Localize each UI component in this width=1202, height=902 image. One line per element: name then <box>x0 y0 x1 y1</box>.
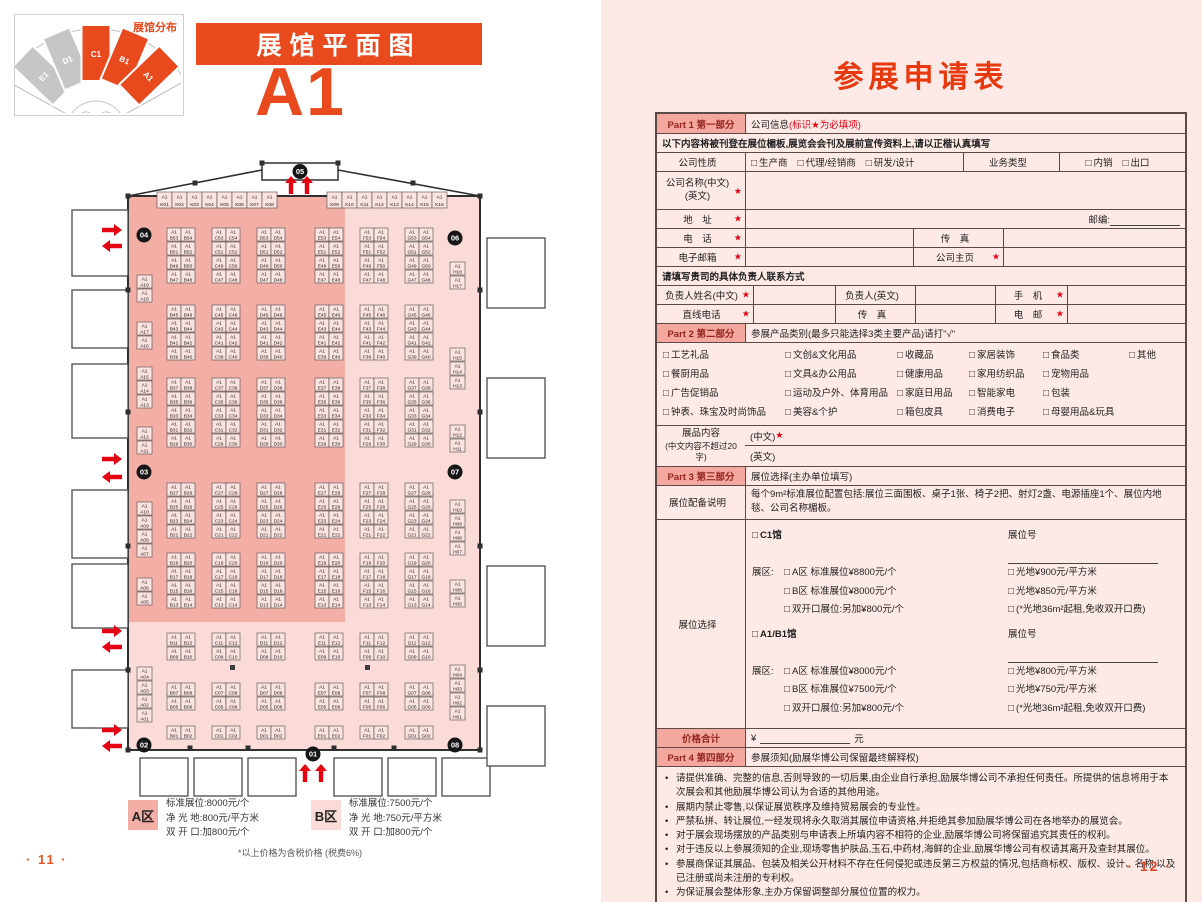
contact-notice-row: 请填写贵司的具体负责人联系方式 <box>657 266 1185 285</box>
bullet-dot-icon: • <box>665 801 668 815</box>
part4-heading: 参展须知(励展华博公司保留最终解释权) <box>745 748 1185 766</box>
application-form: Part 1 第一部分 公司信息 (标识★为必填项) 以下内容将被刊登在展位楣板… <box>655 112 1187 902</box>
checkbox-label: B区 标准展位¥7500元/个 <box>792 684 897 695</box>
wall-node <box>126 194 131 199</box>
checkbox-icon: □ <box>752 527 758 546</box>
checkbox-option[interactable]: □家用纺织品 <box>969 365 1043 384</box>
wall-node <box>392 746 397 751</box>
checkbox-label: 家庭日用品 <box>905 388 953 399</box>
checkbox-label: 箱包皮具 <box>905 407 943 418</box>
wall-node <box>126 748 131 753</box>
gate-number: 03 <box>140 468 148 477</box>
checkbox-option[interactable]: □收藏品 <box>897 346 969 365</box>
checkbox-icon: □ <box>784 564 790 583</box>
bullet-text: 参展商保证其展品、包装及相关公开材料不存在任何侵犯或违反第三方权益的情况,包括商… <box>676 859 1175 884</box>
wall-node <box>478 668 483 673</box>
checkbox-icon: □ <box>784 700 790 719</box>
checkbox-label: 研发/设计 <box>874 158 915 169</box>
price-total-label: 价格合计 <box>657 729 745 747</box>
checkbox-label: 美容&个护 <box>793 407 837 418</box>
wall-node <box>478 410 483 415</box>
checkbox-icon: □ <box>663 403 669 422</box>
wall-node <box>193 181 198 186</box>
entrance-arrow-right <box>102 453 122 465</box>
required-star-icon: ★ <box>1056 309 1064 320</box>
categories-row: □工艺礼品□餐厨用品□广告促销品□钟表、珠宝及时尚饰品□文创&文化用品□文具&办… <box>657 342 1185 425</box>
checkbox-option[interactable]: □箱包皮具 <box>897 403 969 422</box>
company-name-row: 公司名称(中文) (英文) ★ <box>657 171 1185 209</box>
legend-line: 净 光 地:750元/平方米 <box>349 812 442 827</box>
pillar-marker <box>230 665 235 670</box>
checkbox-icon: □ <box>897 384 903 403</box>
category-column: □家居装饰□家用纺织品□智能家电□消费电子 <box>969 346 1043 422</box>
checkbox-icon: □ <box>1043 346 1049 365</box>
checkbox-icon: □ <box>897 365 903 384</box>
required-star-icon: ★ <box>992 252 1000 263</box>
wall-node <box>332 746 337 751</box>
gate-number: 04 <box>140 231 149 240</box>
outside-room <box>334 758 382 796</box>
checkbox-label: 双开口展位:另加¥800元/个 <box>792 604 904 615</box>
checkbox-option[interactable]: □(*光地36m²起租,免收双开口费) <box>1008 604 1145 615</box>
hall-option-line: 展区:□A区 标准展位¥8000元/个□光地¥800元/平方米 <box>752 663 1179 682</box>
checkbox-label: 消费电子 <box>977 407 1015 418</box>
checkbox-icon: □ <box>969 365 975 384</box>
checkbox-option[interactable]: □(*光地36m²起租,免收双开口费) <box>1008 703 1145 714</box>
checkbox-option[interactable]: □双开口展位:另加¥800元/个 <box>784 601 904 620</box>
district-label: 展区: <box>752 663 784 682</box>
checkbox-label: 包装 <box>1051 388 1070 399</box>
price-legend: A区标准展位:8000元/个净 光 地:800元/平方米双 开 口:加800元/… <box>128 797 442 841</box>
postcode-field[interactable] <box>1110 215 1180 226</box>
checkbox-icon: □ <box>1043 403 1049 422</box>
entrance-arrow-left <box>102 740 122 752</box>
checkbox-label: (*光地36m²起租,免收双开口费) <box>1016 604 1145 615</box>
checkbox-option[interactable]: □宠物用品 <box>1043 365 1129 384</box>
checkbox-option[interactable]: □B区 标准展位¥7500元/个 <box>784 681 897 700</box>
bullet-dot-icon: • <box>665 858 668 872</box>
hall-overview-label: 展馆分布 <box>133 19 177 35</box>
checkbox-icon: □ <box>663 384 669 403</box>
checkbox-label: 收藏品 <box>905 350 934 361</box>
bullet-dot-icon: • <box>665 843 668 857</box>
company-name-label: 公司名称(中文) (英文) ★ <box>657 172 745 209</box>
booth-no-line: 展位号 <box>1008 527 1179 564</box>
legend-line: 净 光 地:800元/平方米 <box>166 812 259 827</box>
checkbox-option[interactable]: □钟表、珠宝及时尚饰品 <box>663 403 785 422</box>
checkbox-option[interactable]: □文具&办公用品 <box>785 365 897 384</box>
hall-option-line: □B区 标准展位¥7500元/个□光地¥750元/平方米 <box>752 681 1179 700</box>
outside-room <box>248 758 296 796</box>
wall-node <box>126 288 131 293</box>
checkbox-option[interactable]: □消费电子 <box>969 403 1043 422</box>
contact-name-label: 负责人姓名(中文)★ <box>657 286 753 304</box>
checkbox-icon: □ <box>785 403 791 422</box>
checkbox-label: 母婴用品&玩具 <box>1051 407 1114 418</box>
wall-node <box>260 161 265 166</box>
contact-name-row: 负责人姓名(中文)★ 负责人(英文) 手 机★ <box>657 285 1185 304</box>
hall-option-line: □双开口展位:另加¥800元/个□(*光地36m²起租,免收双开口费) <box>752 700 1179 719</box>
gate-number: 02 <box>140 741 148 750</box>
outside-room <box>194 758 242 796</box>
notice-bullet: •参展商保证其展品、包装及相关公开材料不存在任何侵犯或违反第三方权益的情况,包括… <box>665 858 1177 887</box>
wall-node <box>126 410 131 415</box>
page-number-left: · 11 · <box>26 852 68 867</box>
outside-room <box>388 758 436 796</box>
email-field[interactable] <box>745 248 913 266</box>
required-star-icon: ★ <box>734 184 742 196</box>
checkbox-label: A区 标准展位¥8800元/个 <box>792 567 897 578</box>
checkbox-label: 光地¥800元/平方米 <box>1016 666 1097 677</box>
booth-no-field[interactable] <box>1008 553 1158 564</box>
checkbox-option[interactable]: □代理/经销商 <box>798 155 856 169</box>
notice-bullet: •对于违反以上参展须知的企业,现场零售护肤品,玉石,中药材,海鲜的企业,励展华博… <box>665 843 1177 857</box>
address-row: 地 址★ 邮编: <box>657 209 1185 228</box>
checkbox-option[interactable]: □生产商 <box>751 155 788 169</box>
checkbox-option[interactable]: □研发/设计 <box>866 155 915 169</box>
exhibit-content-cn-field[interactable]: (中文)★ <box>745 426 1185 445</box>
part1-tag: Part 1 第一部分 <box>657 114 745 133</box>
wall-node <box>411 181 416 186</box>
part2-tag: Part 2 第二部分 <box>657 324 745 342</box>
wall-node <box>188 746 193 751</box>
booth-config-label: 展位配备说明 <box>657 486 745 519</box>
checkbox-icon: □ <box>897 403 903 422</box>
checkbox-icon: □ <box>1085 158 1091 169</box>
checkbox-label: C1馆 <box>760 530 782 541</box>
legend-line: 标准展位:8000元/个 <box>166 797 259 812</box>
checkbox-option[interactable]: □餐厨用品 <box>663 365 785 384</box>
checkbox-option[interactable]: □光地¥750元/平方米 <box>1008 684 1097 695</box>
checkbox-icon: □ <box>1008 663 1014 682</box>
legend-swatch: A区 <box>128 800 158 830</box>
contact-name-en-field[interactable] <box>915 286 995 304</box>
checkbox-option[interactable]: □健康用品 <box>897 365 969 384</box>
outside-room <box>72 564 128 628</box>
business-type-label: 业务类型 <box>963 153 1059 171</box>
booth-no-field[interactable] <box>1008 652 1158 663</box>
bullet-text: 对于违反以上参展须知的企业,现场零售护肤品,玉石,中药材,海鲜的企业,励展华博公… <box>676 844 1155 855</box>
entrance-arrow-left <box>102 471 122 483</box>
checkbox-label: 家用纺织品 <box>977 369 1025 380</box>
checkbox-option[interactable]: □出口 <box>1123 155 1150 169</box>
hall-option-line: □B区 标准展位¥8000元/个□光地¥850元/平方米 <box>752 583 1179 602</box>
part2-header-row: Part 2 第二部分 参展产品类别(最多只能选择3类主要产品)请打"√" <box>657 323 1185 342</box>
legend-swatch: B区 <box>311 800 341 830</box>
price-total-field[interactable] <box>760 733 850 744</box>
required-star-icon: ★ <box>734 233 742 244</box>
bullet-text: 为保证展会整体形象,主办方保留调整部分展位位置的权力。 <box>676 887 926 898</box>
direct-phone-field[interactable] <box>753 305 835 323</box>
booth-selection-options: □C1馆展位号 展区:□A区 标准展位¥8800元/个□光地¥900元/平方米□… <box>745 520 1185 728</box>
hall-name: A1 <box>0 58 601 126</box>
checkbox-icon: □ <box>1123 158 1129 169</box>
company-name-field[interactable] <box>745 172 1185 209</box>
checkbox-label: A区 标准展位¥8000元/个 <box>792 666 897 677</box>
checkbox-icon: □ <box>1008 700 1014 719</box>
part3-tag: Part 3 第三部分 <box>657 467 745 485</box>
checkbox-icon: □ <box>785 346 791 365</box>
checkbox-label: 光地¥900元/平方米 <box>1016 567 1097 578</box>
checkbox-icon: □ <box>798 158 804 169</box>
part4-header-row: Part 4 第四部分 参展须知(励展华博公司保留最终解释权) <box>657 747 1185 766</box>
company-nature-label: 公司性质 <box>657 153 745 171</box>
checkbox-icon: □ <box>751 158 757 169</box>
business-type-options: □内销□出口 <box>1059 153 1185 171</box>
outside-room <box>72 290 128 348</box>
mobile-field[interactable] <box>1067 286 1185 304</box>
wall-node <box>478 194 483 199</box>
company-nature-row: 公司性质 □生产商□代理/经销商□研发/设计 业务类型 □内销□出口 <box>657 152 1185 171</box>
checkbox-option[interactable]: □工艺礼品 <box>663 346 785 365</box>
checkbox-label: 光地¥850元/平方米 <box>1016 586 1097 597</box>
district-label <box>752 583 784 602</box>
notice-bullet: •展期内禁止零售,以保证展览秩序及维持贸易展会的专业性。 <box>665 801 1177 815</box>
part1-header-row: Part 1 第一部分 公司信息 (标识★为必填项) <box>657 114 1185 133</box>
entrance-arrow-left <box>102 641 122 653</box>
checkbox-label: 工艺礼品 <box>671 350 709 361</box>
exhibit-content-row: 展品内容 (中文内容不超过20字) (中文)★ (英文) <box>657 425 1185 466</box>
checkbox-option[interactable]: □C1馆 <box>752 527 782 564</box>
checkbox-option[interactable]: □文创&文化用品 <box>785 346 897 365</box>
checkbox-icon: □ <box>785 384 791 403</box>
company-name-cn-label: 公司名称(中文) <box>666 178 729 191</box>
wall-node <box>478 544 483 549</box>
application-form-page: 参展申请表 Part 1 第一部分 公司信息 (标识★为必填项) 以下内容将被刊… <box>601 0 1202 902</box>
wall-node <box>126 668 131 673</box>
bullet-dot-icon: • <box>665 815 668 829</box>
product-categories: □工艺礼品□餐厨用品□广告促销品□钟表、珠宝及时尚饰品□文创&文化用品□文具&办… <box>657 343 1185 425</box>
checkbox-icon: □ <box>969 384 975 403</box>
fax-field[interactable] <box>1003 229 1185 247</box>
bullet-dot-icon: • <box>665 829 668 843</box>
outside-room <box>487 706 545 766</box>
phone-field[interactable] <box>745 229 913 247</box>
outside-room <box>72 670 128 728</box>
exhibit-content-label: 展品内容 (中文内容不超过20字) <box>657 426 745 466</box>
part1-heading-note: (标识★为必填项) <box>789 117 861 131</box>
checkbox-option[interactable]: □A1/B1馆 <box>752 626 796 663</box>
required-star-icon: ★ <box>1056 290 1064 301</box>
part1-heading-cell: 公司信息 (标识★为必填项) <box>745 114 1185 133</box>
bullet-text: 请提供准确、完整的信息,否则导致的一切后果,由企业自行承担,励展华博公司不承担任… <box>676 773 1168 798</box>
legend-line: 标准展位:7500元/个 <box>349 797 442 812</box>
checkbox-option[interactable]: □运动及户外、体育用品 <box>785 384 897 403</box>
gate-number: 08 <box>451 741 459 750</box>
fax-label: 传 真 <box>913 229 1003 247</box>
checkbox-icon: □ <box>897 346 903 365</box>
contact-name-field[interactable] <box>753 286 835 304</box>
category-column: □其他 <box>1129 346 1171 422</box>
wall-node <box>126 544 131 549</box>
part2-heading: 参展产品类别(最多只能选择3类主要产品)请打"√" <box>745 324 1185 342</box>
checkbox-option[interactable]: □光地¥900元/平方米 <box>1008 567 1097 578</box>
notice-bullet: •为保证展会整体形象,主办方保留调整部分展位位置的权力。 <box>665 886 1177 900</box>
company-nature-options: □生产商□代理/经销商□研发/设计 <box>745 153 963 171</box>
contact-notice: 请填写贵司的具体负责人联系方式 <box>657 267 1185 285</box>
required-star-icon: ★ <box>742 290 750 301</box>
part4-tag: Part 4 第四部分 <box>657 748 745 766</box>
category-column: □食品类□宠物用品□包装□母婴用品&玩具 <box>1043 346 1129 422</box>
checkbox-option[interactable]: □其他 <box>1129 346 1171 365</box>
booth-config-row: 展位配备说明 每个9m²标准展位配置包括:展位三面围板、桌子1张、椅子2把、射灯… <box>657 485 1185 519</box>
checkbox-option[interactable]: □光地¥800元/平方米 <box>1008 666 1097 677</box>
outside-room <box>442 758 490 796</box>
checkbox-label: 广告促销品 <box>671 388 719 399</box>
checkbox-label: B区 标准展位¥8000元/个 <box>792 586 897 597</box>
checkbox-label: 其他 <box>1137 350 1156 361</box>
hall-block-C1馆: □C1馆展位号 展区:□A区 标准展位¥8800元/个□光地¥900元/平方米□… <box>752 527 1179 620</box>
part1-notice: 以下内容将被刊登在展位楣板,展览会会刊及展前宣传资料上,请以正楷认真填写 <box>657 134 1185 152</box>
gate-number: 01 <box>309 750 317 759</box>
phone-row: 电 话★ 传 真 <box>657 228 1185 247</box>
outside-room <box>487 378 545 458</box>
district-label <box>752 681 784 700</box>
gate-number: 06 <box>451 234 459 243</box>
checkbox-icon: □ <box>1008 681 1014 700</box>
part1-notice-row: 以下内容将被刊登在展位楣板,展览会会刊及展前宣传资料上,请以正楷认真填写 <box>657 133 1185 152</box>
checkbox-icon: □ <box>752 626 758 645</box>
fax2-label: 传 真 <box>835 305 915 323</box>
outside-room <box>72 210 128 276</box>
fax2-field[interactable] <box>915 305 995 323</box>
company-name-en-label: (英文) <box>685 191 710 204</box>
checkbox-label: 运动及户外、体育用品 <box>793 388 888 399</box>
wall-node <box>246 746 251 751</box>
checkbox-label: 健康用品 <box>905 369 943 380</box>
part3-header-row: Part 3 第三部分 展位选择(主办单位填写) <box>657 466 1185 485</box>
entrance-arrow-up <box>315 764 327 782</box>
outside-room <box>72 490 128 558</box>
checkbox-icon: □ <box>785 365 791 384</box>
brochure-spread: E1D1C1B1A1 展馆分布 展馆平面图 A1 A1K01A1K02A1K03… <box>0 0 1202 902</box>
checkbox-label: 食品类 <box>1051 350 1080 361</box>
checkbox-label: 钟表、珠宝及时尚饰品 <box>671 407 766 418</box>
checkbox-option[interactable]: □双开口展位:另加¥800元/个 <box>784 700 904 719</box>
booth-config-text: 每个9m²标准展位配置包括:展位三面围板、桌子1张、椅子2把、射灯2盏、电源插座… <box>745 486 1185 519</box>
outside-room <box>140 758 188 796</box>
checkbox-option[interactable]: □家居装饰 <box>969 346 1043 365</box>
form-title: 参展申请表 <box>655 52 1187 96</box>
checkbox-option[interactable]: □智能家电 <box>969 384 1043 403</box>
email-row: 电子邮箱★ 公司主页★ <box>657 247 1185 266</box>
gate-number: 07 <box>451 468 459 477</box>
checkbox-option[interactable]: □家庭日用品 <box>897 384 969 403</box>
checkbox-icon: □ <box>866 158 872 169</box>
checkbox-icon: □ <box>663 365 669 384</box>
contact-name-en-label: 负责人(英文) <box>835 286 915 304</box>
price-total-value: ¥ 元 <box>745 729 1185 747</box>
mobile-label: 手 机★ <box>995 286 1067 304</box>
checkbox-label: 出口 <box>1131 158 1150 169</box>
homepage-label: 公司主页★ <box>913 248 1003 266</box>
checkbox-icon: □ <box>969 346 975 365</box>
checkbox-option[interactable]: □广告促销品 <box>663 384 785 403</box>
email-label: 电子邮箱★ <box>657 248 745 266</box>
category-column: □工艺礼品□餐厨用品□广告促销品□钟表、珠宝及时尚饰品 <box>663 346 785 422</box>
notice-bullets-row: •请提供准确、完整的信息,否则导致的一切后果,由企业自行承担,励展华博公司不承担… <box>657 766 1185 902</box>
checkbox-label: 家居装饰 <box>977 350 1015 361</box>
floor-plan: A1K01A1K02A1K03A1K04A1K05A1K06A1K07A1K08… <box>25 150 560 810</box>
booth-selection-row: 展位选择 □C1馆展位号 展区:□A区 标准展位¥8800元/个□光地¥900元… <box>657 519 1185 728</box>
hall-block-A1/B1馆: □A1/B1馆展位号 展区:□A区 标准展位¥8000元/个□光地¥800元/平… <box>752 626 1179 719</box>
checkbox-icon: □ <box>784 583 790 602</box>
checkbox-option[interactable]: □母婴用品&玩具 <box>1043 403 1129 422</box>
checkbox-label: A1/B1馆 <box>760 629 796 640</box>
email2-field[interactable] <box>1067 305 1185 323</box>
legend-line: 双 开 口:加800元/个 <box>349 826 442 841</box>
outside-room <box>487 566 545 646</box>
homepage-field[interactable] <box>1003 248 1185 266</box>
exhibit-content-en-field[interactable]: (英文) <box>745 445 1185 465</box>
checkbox-option[interactable]: □A区 标准展位¥8800元/个 <box>784 564 897 583</box>
checkbox-option[interactable]: □美容&个护 <box>785 403 897 422</box>
hall-option-line: □双开口展位:另加¥800元/个□(*光地36m²起租,免收双开口费) <box>752 601 1179 620</box>
checkbox-label: 智能家电 <box>977 388 1015 399</box>
checkbox-option[interactable]: □内销 <box>1085 155 1112 169</box>
notice-bullet: •严禁私拼、转让展位,一经发现将永久取消其展位申请资格,并拒绝其参加励展华博公司… <box>665 815 1177 829</box>
bullet-dot-icon: • <box>665 772 668 786</box>
direct-phone-label: 直线电话★ <box>657 305 753 323</box>
bullet-text: 展期内禁止零售,以保证展览秩序及维持贸易展会的专业性。 <box>676 802 926 813</box>
checkbox-option[interactable]: □食品类 <box>1043 346 1129 365</box>
district-label <box>752 601 784 620</box>
direct-phone-row: 直线电话★ 传 真 电 邮★ <box>657 304 1185 323</box>
category-column: □收藏品□健康用品□家庭日用品□箱包皮具 <box>897 346 969 422</box>
wall-node <box>478 748 483 753</box>
address-field[interactable]: 邮编: <box>745 210 1185 228</box>
checkbox-option[interactable]: □A区 标准展位¥8000元/个 <box>784 663 897 682</box>
required-star-icon: ★ <box>734 252 742 263</box>
checkbox-icon: □ <box>1129 346 1135 365</box>
notice-bullet: •请提供准确、完整的信息,否则导致的一切后果,由企业自行承担,励展华博公司不承担… <box>665 772 1177 801</box>
phone-label: 电 话★ <box>657 229 745 247</box>
checkbox-label: 生产商 <box>759 158 788 169</box>
checkbox-icon: □ <box>784 663 790 682</box>
checkbox-option[interactable]: □B区 标准展位¥8000元/个 <box>784 583 897 602</box>
bullet-text: 严禁私拼、转让展位,一经发现将永久取消其展位申请资格,并拒绝其参加励展华博公司在… <box>676 816 1128 827</box>
booth-selection-label: 展位选择 <box>657 520 745 728</box>
booth-no-line: 展位号 <box>1008 626 1179 663</box>
checkbox-option[interactable]: □光地¥850元/平方米 <box>1008 586 1097 597</box>
checkbox-label: 文具&办公用品 <box>793 369 856 380</box>
checkbox-label: (*光地36m²起租,免收双开口费) <box>1016 703 1145 714</box>
checkbox-label: 餐厨用品 <box>671 369 709 380</box>
category-column: □文创&文化用品□文具&办公用品□运动及户外、体育用品□美容&个护 <box>785 346 897 422</box>
checkbox-option[interactable]: □包装 <box>1043 384 1129 403</box>
hall-select-line: □C1馆展位号 <box>752 527 1179 564</box>
exhibitor-notices: •请提供准确、完整的信息,否则导致的一切后果,由企业自行承担,励展华博公司不承担… <box>657 767 1185 902</box>
hall-option-line: 展区:□A区 标准展位¥8800元/个□光地¥900元/平方米 <box>752 564 1179 583</box>
entrance-arrow-up <box>299 764 311 782</box>
legend-note: *以上价格为含税价格 (税费6%) <box>100 846 500 859</box>
price-total-row: 价格合计 ¥ 元 <box>657 728 1185 747</box>
part3-heading: 展位选择(主办单位填写) <box>745 467 1185 485</box>
legend-line: 双 开 口:加800元/个 <box>166 826 259 841</box>
checkbox-label: 内销 <box>1093 158 1112 169</box>
hall-select-line: □A1/B1馆展位号 <box>752 626 1179 663</box>
exhibit-content-fields: (中文)★ (英文) <box>745 426 1185 466</box>
legend-item-A区: A区标准展位:8000元/个净 光 地:800元/平方米双 开 口:加800元/… <box>128 797 259 841</box>
checkbox-icon: □ <box>1043 365 1049 384</box>
address-label: 地 址★ <box>657 210 745 228</box>
checkbox-icon: □ <box>969 403 975 422</box>
postcode-label: 邮编: <box>1088 212 1180 226</box>
wall-node <box>336 161 341 166</box>
checkbox-icon: □ <box>784 681 790 700</box>
checkbox-label: 代理/经销商 <box>806 158 856 169</box>
email2-label: 电 邮★ <box>995 305 1067 323</box>
